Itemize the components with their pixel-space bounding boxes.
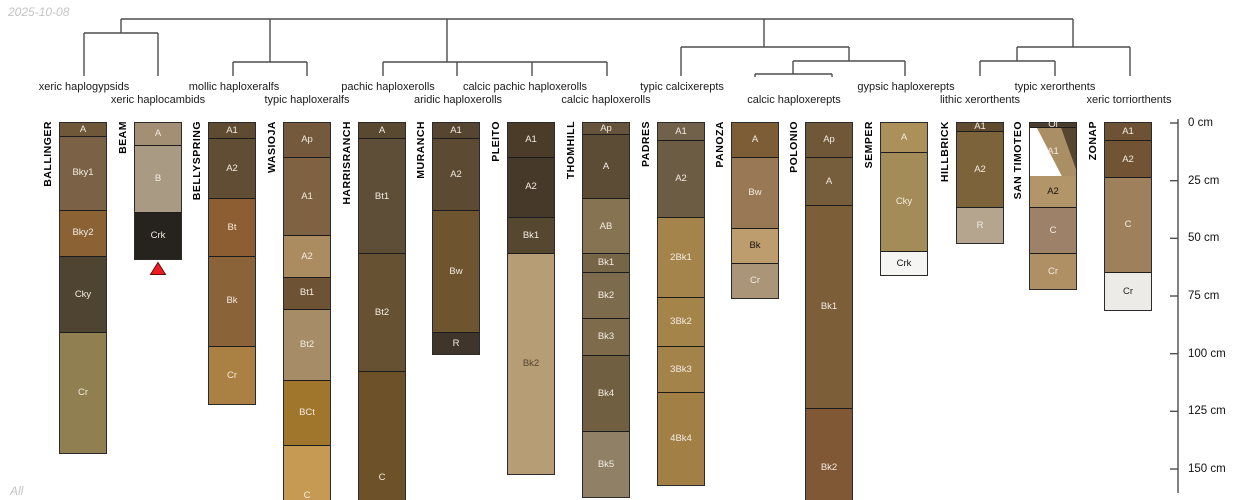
- depth-axis-svg: [0, 0, 1250, 500]
- footer-label: All: [10, 484, 23, 498]
- soil-profile-dendrogram-figure: 2025-10-08 xeric haplogypsidsxeric haplo…: [0, 0, 1250, 500]
